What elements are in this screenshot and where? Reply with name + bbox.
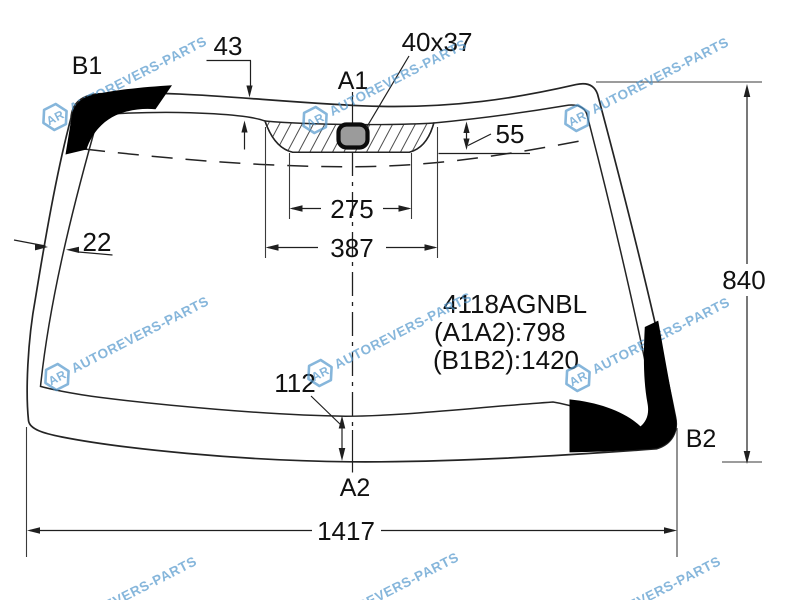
dim-value-sensor-inner-width: 275 xyxy=(330,194,373,224)
dim-value-sensor-outer-width: 387 xyxy=(330,233,373,263)
dim-value-sensor-depth: 55 xyxy=(496,119,525,149)
part-dim-a1a2: (A1A2):798 xyxy=(434,317,566,347)
windshield-diagram-canvas: AR AUTOREVERS-PARTS 43 40x37 55 xyxy=(0,0,800,600)
rain-sensor-window xyxy=(339,125,368,148)
dim-value-side-band: 22 xyxy=(83,227,112,257)
label-b1: B1 xyxy=(72,52,103,80)
label-a2: A2 xyxy=(340,474,371,502)
diagram-svg: AR AUTOREVERS-PARTS 43 40x37 55 xyxy=(0,0,800,600)
dim-value-width: 1417 xyxy=(317,516,375,546)
dim-value-height: 840 xyxy=(722,265,765,295)
part-dim-b1b2: (B1B2):1420 xyxy=(433,345,579,375)
dim-value-top-band: 43 xyxy=(214,31,243,61)
label-b2: B2 xyxy=(686,425,717,453)
